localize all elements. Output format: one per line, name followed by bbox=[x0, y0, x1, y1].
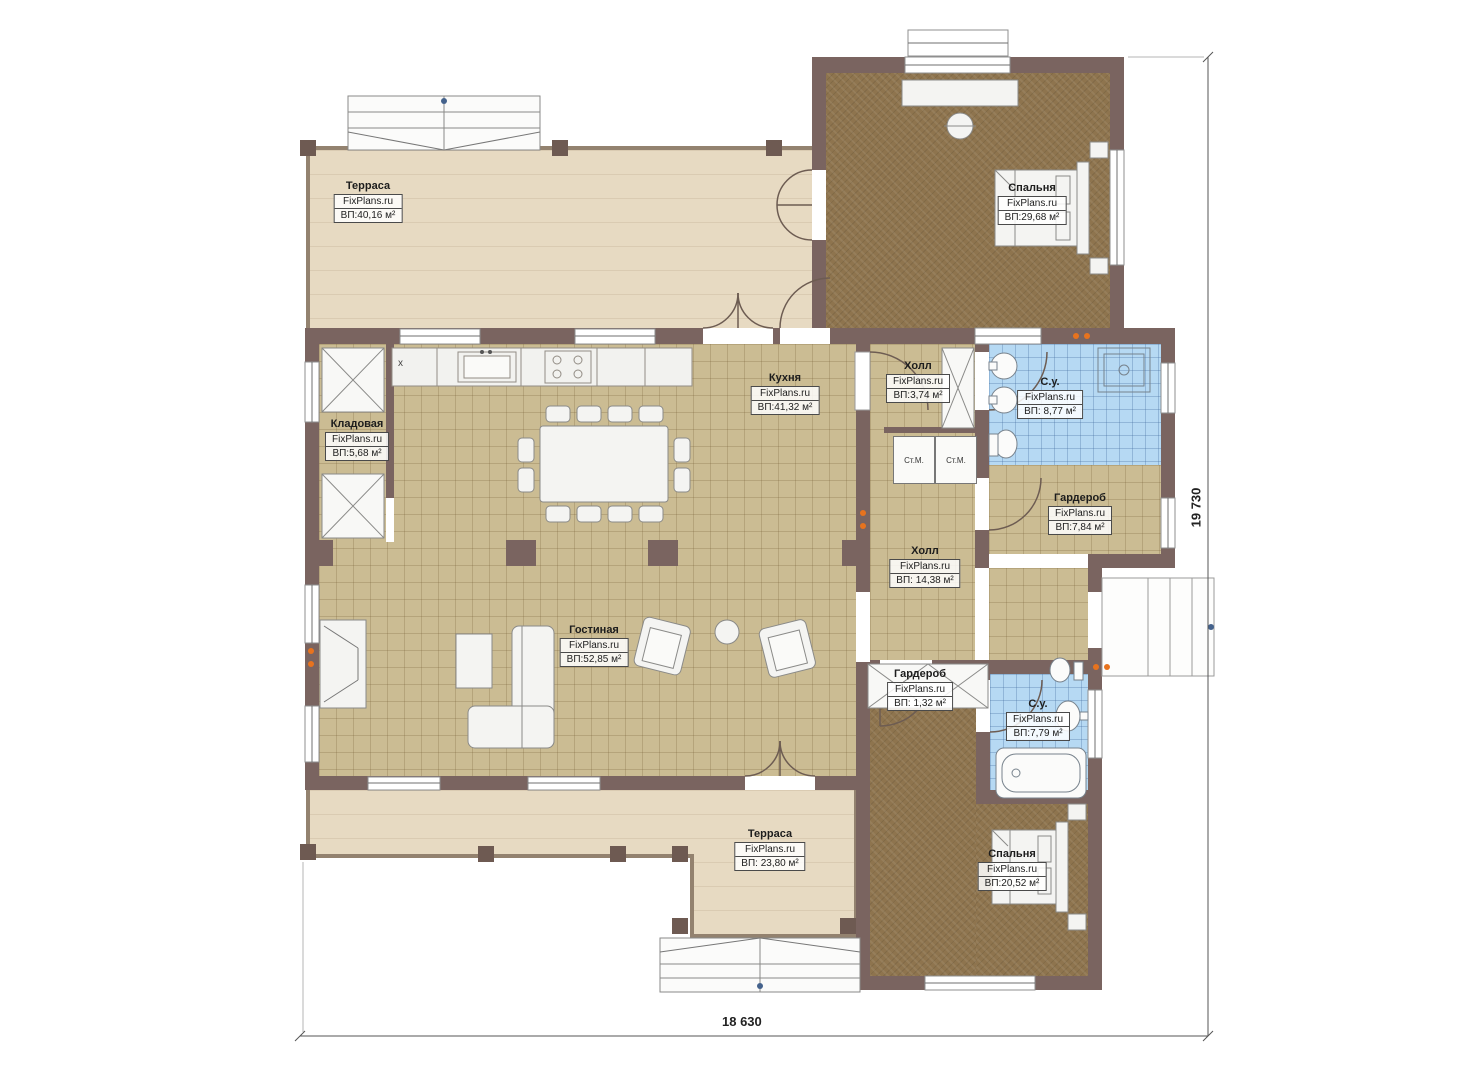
room-area: ВП:3,74 м² bbox=[887, 388, 949, 402]
room-label-box: FixPlans.ru ВП: 8,77 м² bbox=[1017, 390, 1083, 419]
room-label-box: FixPlans.ru ВП:52,85 м² bbox=[560, 638, 629, 667]
watermark: FixPlans.ru bbox=[888, 683, 952, 696]
room-label-bedroom-bottom: Спальня FixPlans.ru ВП:20,52 м² bbox=[978, 848, 1047, 891]
room-label-wardrobe-top: Гардероб FixPlans.ru ВП:7,84 м² bbox=[1048, 492, 1112, 535]
bedroom-top-furniture bbox=[902, 80, 1108, 274]
room-label-bathroom-top: С.у. FixPlans.ru ВП: 8,77 м² bbox=[1017, 376, 1083, 419]
watermark: FixPlans.ru bbox=[1007, 713, 1069, 726]
chair bbox=[577, 406, 601, 422]
bed-headboard bbox=[1056, 822, 1068, 912]
radiator-icon bbox=[1073, 333, 1079, 339]
room-label-terrace-top: Терраса FixPlans.ru ВП:40,16 м² bbox=[334, 180, 403, 223]
room-label-box: FixPlans.ru ВП: 23,80 м² bbox=[734, 842, 805, 871]
room-area: ВП:52,85 м² bbox=[561, 652, 628, 666]
room-label-box: FixPlans.ru ВП:41,32 м² bbox=[751, 386, 820, 415]
room-area: ВП:29,68 м² bbox=[999, 210, 1066, 224]
room-label-bathroom-bottom: С.у. FixPlans.ru ВП:7,79 м² bbox=[1006, 698, 1070, 741]
room-label-pantry: Кладовая FixPlans.ru ВП:5,68 м² bbox=[325, 418, 389, 461]
plan-overlay bbox=[0, 0, 1474, 1080]
desk bbox=[902, 80, 1018, 106]
room-label-box: FixPlans.ru ВП: 14,38 м² bbox=[889, 559, 960, 588]
watermark: FixPlans.ru bbox=[887, 375, 949, 388]
sofa-chaise bbox=[468, 706, 554, 748]
chair bbox=[608, 506, 632, 522]
room-name: Спальня bbox=[978, 848, 1047, 860]
room-name: Гардероб bbox=[1048, 492, 1112, 504]
room-label-terrace-bottom: Терраса FixPlans.ru ВП: 23,80 м² bbox=[734, 828, 805, 871]
room-area: ВП: 1,32 м² bbox=[888, 696, 952, 710]
room-name: Кладовая bbox=[325, 418, 389, 430]
room-area: ВП: 23,80 м² bbox=[735, 856, 804, 870]
room-area: ВП:20,52 м² bbox=[979, 876, 1046, 890]
watermark: FixPlans.ru bbox=[735, 843, 804, 856]
chair bbox=[639, 406, 663, 422]
room-label-bedroom-top: Спальня FixPlans.ru ВП:29,68 м² bbox=[998, 182, 1067, 225]
room-name: Кухня bbox=[751, 372, 820, 384]
room-label-box: FixPlans.ru ВП:7,79 м² bbox=[1006, 712, 1070, 741]
chair bbox=[518, 468, 534, 492]
chair bbox=[518, 438, 534, 462]
french-door-kitchen bbox=[703, 293, 738, 328]
room-label-hall-small: Холл FixPlans.ru ВП:3,74 м² bbox=[886, 360, 950, 403]
room-label-box: FixPlans.ru ВП:3,74 м² bbox=[886, 374, 950, 403]
room-name: Холл bbox=[889, 545, 960, 557]
room-name: Холл bbox=[886, 360, 950, 372]
side-table bbox=[715, 620, 739, 644]
chair bbox=[546, 406, 570, 422]
armchair bbox=[758, 618, 817, 678]
nightstand bbox=[1068, 914, 1086, 930]
room-label-box: FixPlans.ru ВП:7,84 м² bbox=[1048, 506, 1112, 535]
room-name: Гостиная bbox=[560, 624, 629, 636]
room-name: С.у. bbox=[1017, 376, 1083, 388]
watermark: FixPlans.ru bbox=[979, 863, 1046, 876]
coffee-table bbox=[456, 634, 492, 688]
door-arc-wardrobe-top bbox=[989, 478, 1041, 530]
door-arc-bedroom-top bbox=[780, 278, 830, 328]
room-area: ВП:7,84 м² bbox=[1049, 520, 1111, 534]
deck-stairs-top bbox=[348, 96, 540, 150]
room-label-box: FixPlans.ru ВП:5,68 м² bbox=[325, 432, 389, 461]
room-label-wardrobe-small: Гардероб FixPlans.ru ВП: 1,32 м² bbox=[887, 668, 953, 711]
watermark: FixPlans.ru bbox=[1018, 391, 1082, 404]
chair bbox=[639, 506, 663, 522]
french-door-bedroom-top bbox=[777, 170, 812, 205]
room-name: Терраса bbox=[334, 180, 403, 192]
chair bbox=[546, 506, 570, 522]
kitchen-marker: x bbox=[398, 358, 403, 369]
room-label-box: FixPlans.ru ВП:29,68 м² bbox=[998, 196, 1067, 225]
watermark: FixPlans.ru bbox=[752, 387, 819, 400]
watermark: FixPlans.ru bbox=[326, 433, 388, 446]
toilet-icon bbox=[1050, 658, 1070, 682]
room-label-box: FixPlans.ru ВП: 1,32 м² bbox=[887, 682, 953, 711]
room-name: Спальня bbox=[998, 182, 1067, 194]
dimension-height: 19 730 bbox=[1188, 488, 1203, 528]
kitchen-counter bbox=[392, 348, 692, 386]
room-label-box: FixPlans.ru ВП:20,52 м² bbox=[978, 862, 1047, 891]
room-name: Терраса bbox=[734, 828, 805, 840]
bed-headboard bbox=[1077, 162, 1089, 254]
chair bbox=[608, 406, 632, 422]
room-label-living: Гостиная FixPlans.ru ВП:52,85 м² bbox=[560, 624, 629, 667]
armchair bbox=[633, 616, 692, 676]
door-leaf bbox=[855, 352, 870, 410]
washing-machine: Ст.М. bbox=[893, 436, 935, 484]
fireplace-icon bbox=[320, 620, 366, 708]
room-area: ВП:7,79 м² bbox=[1007, 726, 1069, 740]
nightstand bbox=[1068, 804, 1086, 820]
watermark: FixPlans.ru bbox=[999, 197, 1066, 210]
room-name: С.у. bbox=[1006, 698, 1070, 710]
french-door-living bbox=[745, 741, 780, 776]
washing-machine: Ст.М. bbox=[935, 436, 977, 484]
dimension-width: 18 630 bbox=[722, 1014, 762, 1029]
entrance-porch bbox=[1102, 578, 1214, 676]
shower-icon bbox=[1098, 348, 1150, 392]
room-label-hall-main: Холл FixPlans.ru ВП: 14,38 м² bbox=[889, 545, 960, 588]
room-area: ВП: 14,38 м² bbox=[890, 573, 959, 587]
nightstand bbox=[1090, 142, 1108, 158]
room-area: ВП:41,32 м² bbox=[752, 400, 819, 414]
room-name: Гардероб bbox=[887, 668, 953, 680]
washer-label: Ст.М. bbox=[946, 456, 966, 465]
dining-table bbox=[518, 406, 690, 522]
deck-stairs-bottom bbox=[660, 938, 860, 992]
chair bbox=[674, 468, 690, 492]
radiator-icon bbox=[1093, 664, 1099, 670]
stove-icon bbox=[545, 351, 591, 383]
washer-label: Ст.М. bbox=[904, 456, 924, 465]
room-area: ВП:40,16 м² bbox=[335, 208, 402, 222]
floor-plan: Ст.М. Ст.М. x Терраса FixPlans.ru ВП:40,… bbox=[0, 0, 1474, 1080]
door-openings bbox=[386, 170, 1102, 790]
watermark: FixPlans.ru bbox=[561, 639, 628, 652]
room-label-box: FixPlans.ru ВП:40,16 м² bbox=[334, 194, 403, 223]
chair bbox=[674, 438, 690, 462]
watermark: FixPlans.ru bbox=[335, 195, 402, 208]
room-area: ВП:5,68 м² bbox=[326, 446, 388, 460]
room-label-kitchen: Кухня FixPlans.ru ВП:41,32 м² bbox=[751, 372, 820, 415]
watermark: FixPlans.ru bbox=[1049, 507, 1111, 520]
radiator-icon bbox=[308, 648, 314, 654]
radiator-icon bbox=[860, 510, 866, 516]
chair bbox=[577, 506, 601, 522]
watermark: FixPlans.ru bbox=[890, 560, 959, 573]
room-area: ВП: 8,77 м² bbox=[1018, 404, 1082, 418]
nightstand bbox=[1090, 258, 1108, 274]
